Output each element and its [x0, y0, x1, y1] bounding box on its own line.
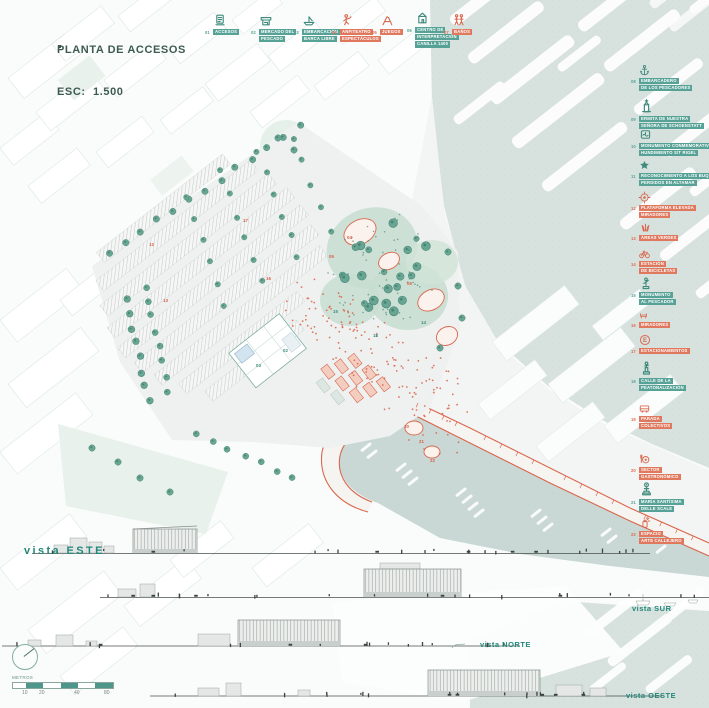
legend-item-label: ANFITEATRO: [340, 29, 373, 35]
legend-item-number: 08: [631, 79, 636, 84]
legend-item-label: DE BICICLETAS: [639, 268, 677, 274]
vista-este-label: vista ESTE: [24, 545, 105, 557]
page-title: PLANTA DE ACCESOS: [57, 43, 186, 57]
legend-item-label: ACCESOS: [213, 29, 239, 35]
legend-item-21: 21MARÍA SANTÍSIMADELLE SCALE: [630, 481, 684, 513]
legend-item-18: 18CALLE DE LAPEATONALIZACIÓN: [630, 360, 686, 392]
bus-icon: [638, 402, 651, 415]
anchor-icon: [638, 64, 651, 77]
legend-item-12: 12PLATAFORMA ELEVADAMIRADORES: [630, 191, 696, 219]
legend-item-16: 16MIRADORES: [630, 310, 670, 329]
statue-column-icon: [638, 360, 655, 377]
scale-tick: 80: [104, 690, 110, 696]
legend-item-number: 04: [332, 30, 337, 35]
legend-item-08: 08EMBARCADERODE LOS PESCADORES: [630, 64, 692, 92]
legend-item-label: ESPACIO: [639, 531, 663, 537]
legend-item-number: 17: [631, 349, 636, 354]
legend-item-label: BAÑOS: [452, 29, 472, 35]
legend-item-number: 05: [372, 30, 377, 35]
title-block: PLANTA DE ACCESOS ESC: 1.500: [57, 14, 186, 114]
page-scale: ESC: 1.500: [57, 85, 186, 99]
legend-right: 08EMBARCADERODE LOS PESCADORES09ERMITA D…: [628, 60, 709, 580]
legend-item-label: GASTRONÓMICO: [639, 474, 681, 480]
bench-icon: [638, 310, 649, 321]
elevated-platform-icon: [638, 191, 651, 204]
legend-item-label: JUEGOS: [380, 29, 403, 35]
scale-bar: METROS 10204080: [12, 675, 114, 697]
street-art-icon: [638, 516, 652, 530]
legend-item-14: 14ESTACIÓNDE BICICLETAS: [630, 247, 677, 275]
legend-item-label: ERMITA DE NUESTRA: [639, 116, 690, 122]
bicycle-icon: [638, 247, 651, 260]
legend-item-number: 16: [631, 323, 636, 328]
legend-item-number: 06: [407, 28, 412, 33]
ticket-office-icon: [212, 12, 228, 28]
legend-item-number: 18: [631, 379, 636, 384]
legend-item-label: AL PESCADOR: [639, 299, 676, 305]
legend-item-number: 01: [205, 30, 210, 35]
legend-item-13: 13ÁREAS VERDES: [630, 219, 678, 242]
interpretation-center-icon: [414, 10, 430, 26]
legend-item-17: E17ESTACIONAMIENTOS: [630, 333, 690, 355]
parking-icon: E: [638, 333, 652, 347]
legend-item-number: 12: [631, 206, 636, 211]
scale-track: [12, 682, 114, 689]
legend-item-label: DELLE SCALE: [639, 506, 674, 512]
legend-item-label: HUNDIMIENTO S/T RIGEL: [639, 150, 698, 156]
legend-item-number: 09: [631, 117, 636, 122]
legend-item-label: ESTACIONAMIENTOS: [639, 348, 690, 354]
legend-item-label: ARTE CALLEJERO: [639, 538, 684, 544]
legend-item-label: ESPECTÁCULOS: [340, 36, 381, 42]
legend-item-number: 11: [631, 174, 635, 179]
vista-sur-label: vista SUR: [632, 604, 672, 613]
legend-item-09: 09ERMITA DE NUESTRASEÑORA DE SCHOENSTATT: [630, 98, 704, 130]
legend-item-15: 15MONUMENTOAL PESCADOR: [630, 275, 676, 306]
legend-item-number: 21: [631, 500, 636, 505]
legend-item-label: MIRADORES: [639, 212, 670, 218]
legend-item-11: 11RECONOCIMIENTO A LOS BUQUESPERDIDOS EN…: [630, 159, 709, 187]
legend-item-number: 02: [251, 30, 256, 35]
legend-item-07: 07BAÑOS: [443, 12, 472, 36]
hermitage-icon: [638, 98, 655, 115]
legend-item-01: 01ACCESOS: [204, 12, 239, 36]
vista-oeste-label: vista OESTE: [626, 691, 676, 700]
title-marker: [58, 45, 61, 48]
legend-item-number: 10: [631, 144, 636, 149]
legend-item-label: CALLE DE LA: [639, 378, 673, 384]
scale-unit-label: METROS: [12, 675, 114, 680]
scale-ticks: 10204080: [12, 689, 114, 697]
legend-item-label: CENTRO DE: [415, 27, 445, 33]
legend-item-label: SECTOR: [639, 467, 662, 473]
legend-item-19: 19PARADACOLECTIVOS: [630, 402, 672, 430]
site-plan-sheet: PLANTA DE ACCESOS ESC: 1.500 01ACCESOS02…: [0, 0, 709, 708]
legend-item-label: DE LOS PESCADORES: [639, 85, 692, 91]
legend-item-number: 20: [631, 468, 636, 473]
legend-item-label: MERCADO DEL: [259, 29, 296, 35]
legend-item-number: 13: [631, 236, 636, 241]
legend-item-label: ESTACIÓN: [639, 261, 666, 267]
fisherman-statue-icon: [638, 275, 654, 291]
legend-item-02: 02MERCADO DELPESCADO: [250, 12, 296, 43]
restrooms-icon: [451, 12, 467, 28]
legend-item-number: 19: [631, 417, 636, 422]
legend-top: 01ACCESOS02MERCADO DELPESCADO03EMBARCACI…: [196, 10, 496, 62]
memorial-plaque-icon: [638, 127, 653, 142]
legend-item-label: EMBARCADERO: [639, 78, 679, 84]
legend-item-number: 15: [631, 293, 636, 298]
legend-item-number: 07: [444, 30, 449, 35]
legend-item-label: PEATONALIZACIÓN: [639, 385, 686, 391]
boat-icon: [301, 12, 317, 28]
scale-tick: 10: [22, 690, 28, 696]
legend-item-label: MARÍA SANTÍSIMA: [639, 499, 684, 505]
north-arrow: [12, 644, 38, 670]
legend-item-05: 05JUEGOS: [371, 12, 403, 36]
fish-market-icon: [258, 12, 274, 28]
star-icon: [638, 159, 651, 172]
svg-text:E: E: [643, 338, 647, 344]
north-needle-icon: [24, 648, 35, 657]
legend-item-label: PESCADO: [259, 36, 285, 42]
legend-item-label: RECONOCIMIENTO A LOS BUQUES: [639, 173, 709, 179]
legend-item-number: 14: [631, 262, 636, 267]
performer-icon: [339, 12, 355, 28]
scale-tick: 40: [74, 690, 80, 696]
scale-tick: 20: [39, 690, 45, 696]
legend-item-label: PERDIDOS EN ALTAMAR: [639, 180, 697, 186]
legend-item-label: MONUMENTO: [639, 292, 673, 298]
legend-item-label: MIRADORES: [639, 322, 670, 328]
legend-item-label: COLECTIVOS: [639, 423, 672, 429]
playground-icon: [379, 12, 395, 28]
legend-item-label: MONUMENTO CONMEMORATIVO: [639, 143, 709, 149]
legend-item-label: ÁREAS VERDES: [639, 235, 678, 241]
saint-statue-icon: [638, 481, 655, 498]
legend-item-20: 20SECTORGASTRONÓMICO: [630, 452, 681, 481]
legend-item-label: PLATAFORMA ELEVADA: [639, 205, 696, 211]
legend-item-number: 22: [631, 532, 636, 537]
legend-item-label: PARADA: [639, 416, 662, 422]
legend-item-label: CANILLA 1400: [415, 41, 450, 47]
legend-item-number: 03: [294, 30, 299, 35]
legend-item-10: 10MONUMENTO CONMEMORATIVOHUNDIMIENTO S/T…: [630, 127, 709, 157]
legend-item-22: 22ESPACIOARTE CALLEJERO: [630, 516, 684, 545]
vista-norte-label: vista NORTE: [480, 640, 531, 649]
gastronomy-icon: [638, 452, 652, 466]
grass-icon: [638, 219, 653, 234]
